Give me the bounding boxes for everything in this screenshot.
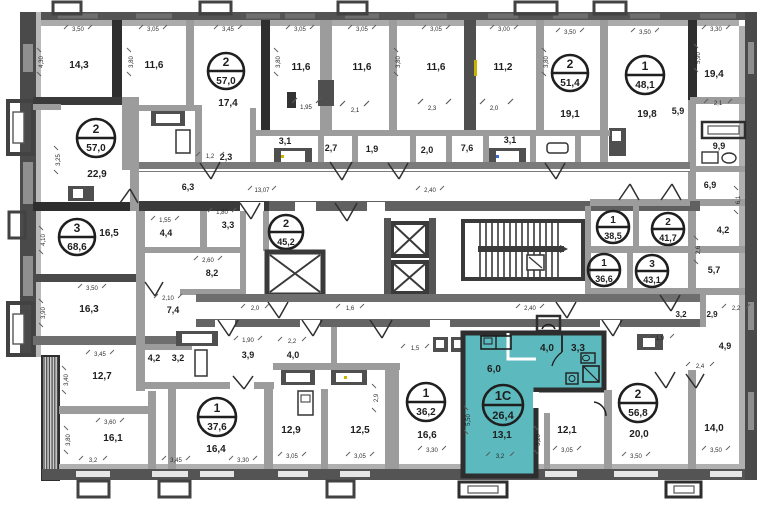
svg-text:1,90: 1,90	[242, 338, 254, 344]
svg-text:11,6: 11,6	[427, 62, 446, 73]
svg-text:5,7: 5,7	[708, 265, 721, 275]
svg-text:1: 1	[423, 386, 430, 400]
svg-text:3,80: 3,80	[66, 434, 72, 446]
svg-text:36,2: 36,2	[416, 407, 436, 418]
svg-text:6,9: 6,9	[704, 180, 717, 190]
svg-text:3,50: 3,50	[564, 30, 576, 36]
svg-text:2,2: 2,2	[288, 339, 297, 345]
svg-text:2: 2	[93, 122, 100, 136]
svg-text:2,0: 2,0	[421, 145, 434, 155]
svg-text:4,0: 4,0	[540, 343, 554, 354]
svg-text:2,1: 2,1	[714, 101, 723, 107]
svg-text:5,9: 5,9	[672, 106, 685, 116]
svg-text:43,1: 43,1	[643, 275, 661, 285]
svg-text:4,2: 4,2	[148, 353, 161, 363]
svg-text:3,05: 3,05	[356, 27, 368, 33]
svg-text:2,60: 2,60	[202, 258, 214, 264]
svg-text:4,30: 4,30	[39, 56, 45, 68]
svg-text:4,0: 4,0	[287, 350, 300, 360]
svg-text:3,30: 3,30	[710, 27, 722, 33]
svg-text:2,0: 2,0	[490, 106, 499, 112]
svg-text:2,40: 2,40	[524, 306, 536, 312]
svg-text:1,9: 1,9	[366, 144, 379, 154]
svg-text:2,2: 2,2	[732, 306, 741, 312]
svg-text:19,4: 19,4	[704, 69, 724, 80]
svg-text:3: 3	[649, 259, 655, 270]
svg-text:1С: 1С	[495, 388, 512, 403]
svg-text:3,50: 3,50	[710, 448, 722, 454]
svg-text:3,50: 3,50	[72, 27, 84, 33]
svg-text:3,05: 3,05	[430, 27, 442, 33]
svg-text:2: 2	[283, 218, 289, 230]
svg-text:1: 1	[610, 215, 616, 226]
svg-text:3,05: 3,05	[286, 454, 298, 460]
svg-text:3,3: 3,3	[222, 220, 235, 230]
svg-text:1: 1	[642, 59, 649, 73]
svg-text:1,9: 1,9	[656, 336, 665, 342]
svg-text:7,4: 7,4	[167, 305, 180, 315]
svg-text:51,4: 51,4	[560, 78, 580, 89]
svg-text:3,00: 3,00	[498, 27, 510, 33]
svg-text:3,30: 3,30	[237, 458, 249, 464]
svg-text:13,1: 13,1	[492, 430, 512, 441]
svg-text:48,1: 48,1	[635, 80, 655, 91]
svg-text:13,07: 13,07	[254, 188, 270, 194]
svg-text:2,0: 2,0	[251, 306, 260, 312]
svg-text:4,2: 4,2	[717, 225, 730, 235]
svg-text:2: 2	[223, 55, 230, 69]
svg-text:20,0: 20,0	[629, 429, 649, 440]
svg-text:3,50: 3,50	[630, 454, 642, 460]
svg-text:3,1: 3,1	[504, 135, 517, 145]
svg-text:2,9: 2,9	[374, 393, 380, 402]
svg-text:7,6: 7,6	[461, 143, 474, 153]
svg-text:1,95: 1,95	[300, 105, 312, 111]
svg-text:38,5: 38,5	[604, 231, 622, 241]
svg-text:3,2: 3,2	[89, 458, 98, 464]
svg-text:4,10: 4,10	[41, 234, 47, 246]
svg-text:57,0: 57,0	[216, 76, 236, 87]
svg-text:3,05: 3,05	[354, 454, 366, 460]
svg-text:2,1: 2,1	[351, 108, 360, 114]
svg-text:3,2: 3,2	[172, 353, 185, 363]
svg-text:16,5: 16,5	[99, 228, 119, 239]
svg-text:6,1: 6,1	[736, 195, 742, 204]
svg-text:12,7: 12,7	[92, 371, 112, 382]
svg-text:2,4: 2,4	[696, 364, 705, 370]
svg-text:3,05: 3,05	[561, 448, 573, 454]
svg-text:26,4: 26,4	[492, 410, 514, 422]
svg-text:22,9: 22,9	[87, 169, 107, 180]
svg-text:1,55: 1,55	[159, 218, 171, 224]
svg-text:45,2: 45,2	[277, 237, 295, 247]
svg-text:3,1: 3,1	[279, 136, 292, 146]
svg-text:41,7: 41,7	[659, 233, 677, 243]
svg-text:14,3: 14,3	[69, 60, 89, 71]
svg-text:19,1: 19,1	[560, 109, 580, 120]
svg-text:16,3: 16,3	[79, 304, 99, 315]
svg-text:3,80: 3,80	[396, 56, 402, 68]
svg-text:2,3: 2,3	[220, 152, 233, 162]
svg-text:3,60: 3,60	[104, 420, 116, 426]
svg-text:12,9: 12,9	[281, 425, 301, 436]
svg-text:6,0: 6,0	[487, 364, 501, 375]
svg-text:2,3: 2,3	[428, 106, 437, 112]
svg-text:3,80: 3,80	[276, 56, 282, 68]
svg-text:2: 2	[665, 217, 671, 228]
svg-text:1,6: 1,6	[346, 306, 355, 312]
svg-text:1,5: 1,5	[411, 346, 420, 352]
svg-text:3,9: 3,9	[242, 350, 255, 360]
svg-text:5,90: 5,90	[696, 52, 702, 64]
svg-text:3: 3	[74, 221, 81, 235]
svg-text:3,40: 3,40	[64, 374, 70, 386]
svg-text:37,6: 37,6	[207, 422, 227, 433]
svg-text:16,4: 16,4	[206, 444, 226, 455]
svg-text:2: 2	[635, 387, 642, 401]
svg-text:11,6: 11,6	[145, 60, 164, 71]
svg-text:3,2: 3,2	[675, 310, 687, 319]
svg-text:16,1: 16,1	[103, 433, 123, 444]
svg-text:5,50: 5,50	[466, 414, 472, 426]
svg-text:3,50: 3,50	[86, 286, 98, 292]
svg-text:16,6: 16,6	[417, 430, 437, 441]
svg-text:11,2: 11,2	[494, 62, 513, 73]
svg-text:1,80: 1,80	[216, 210, 228, 216]
svg-text:17,4: 17,4	[218, 98, 238, 109]
svg-text:3,90: 3,90	[41, 307, 47, 319]
svg-text:3,80: 3,80	[129, 56, 135, 68]
svg-text:19,8: 19,8	[637, 109, 657, 120]
svg-text:14,0: 14,0	[704, 423, 724, 434]
svg-text:1: 1	[214, 401, 221, 415]
svg-text:3,05: 3,05	[294, 27, 306, 33]
svg-text:2,6: 2,6	[696, 245, 702, 254]
svg-text:9,9: 9,9	[713, 141, 726, 151]
svg-text:4,9: 4,9	[719, 341, 732, 351]
svg-text:36,6: 36,6	[595, 274, 613, 284]
svg-text:12,5: 12,5	[350, 425, 370, 436]
svg-text:11,6: 11,6	[353, 62, 372, 73]
svg-text:56,8: 56,8	[628, 408, 648, 419]
svg-text:6,3: 6,3	[182, 182, 195, 192]
svg-text:12,1: 12,1	[557, 425, 577, 436]
svg-text:2,40: 2,40	[424, 188, 436, 194]
svg-text:1: 1	[601, 258, 607, 269]
svg-text:3,25: 3,25	[56, 154, 62, 166]
svg-text:2,7: 2,7	[325, 143, 338, 153]
svg-text:3,05: 3,05	[147, 27, 159, 33]
svg-text:3,80: 3,80	[544, 56, 550, 68]
svg-text:2,9: 2,9	[706, 310, 718, 319]
svg-text:3,50: 3,50	[639, 30, 651, 36]
svg-text:4,4: 4,4	[160, 228, 173, 238]
svg-text:8,2: 8,2	[206, 268, 219, 278]
svg-text:3,20: 3,20	[536, 434, 542, 446]
svg-text:1,2: 1,2	[206, 154, 215, 160]
svg-text:2: 2	[567, 57, 574, 71]
svg-text:68,6: 68,6	[67, 242, 87, 253]
svg-text:57,0: 57,0	[86, 143, 106, 154]
svg-text:3,2: 3,2	[496, 454, 505, 460]
svg-text:11,6: 11,6	[292, 62, 311, 73]
svg-text:2,10: 2,10	[162, 296, 174, 302]
svg-text:3,45: 3,45	[94, 352, 106, 358]
svg-text:3,45: 3,45	[222, 27, 234, 33]
svg-text:3,45: 3,45	[170, 458, 182, 464]
svg-text:3,30: 3,30	[426, 448, 438, 454]
